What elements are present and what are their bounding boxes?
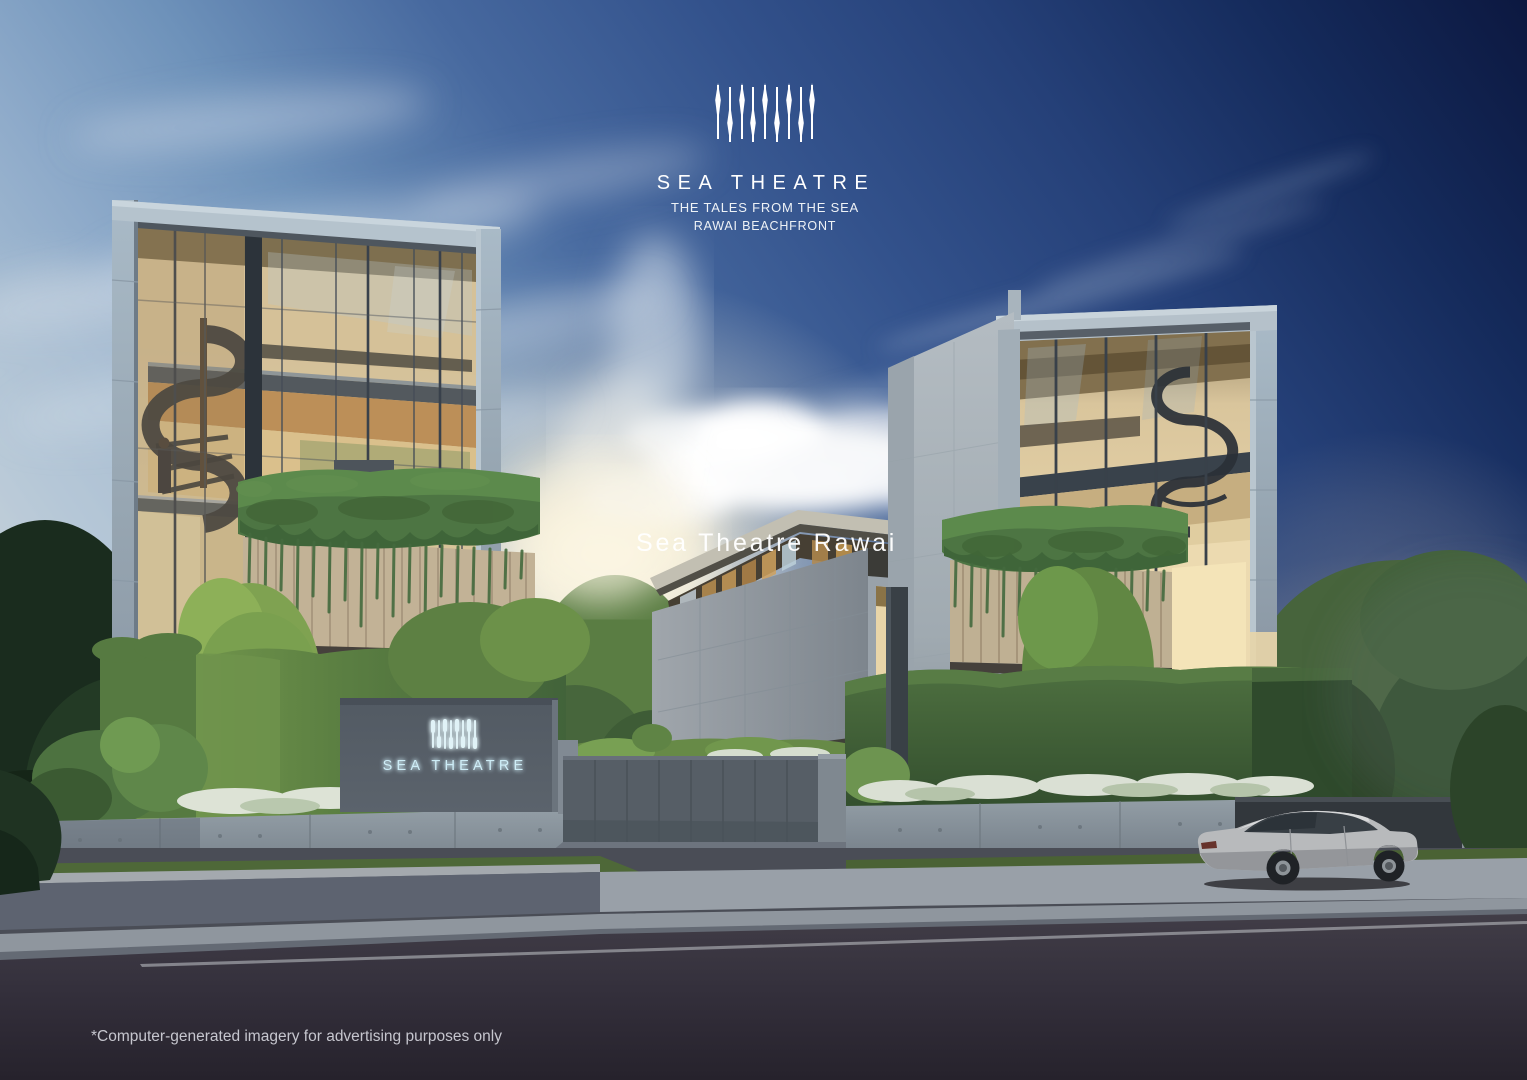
- svg-text:THE TALES FROM THE SEA: THE TALES FROM THE SEA: [671, 200, 859, 215]
- svg-text:SEA THEATRE: SEA THEATRE: [383, 758, 528, 774]
- svg-text:SEA THEATRE: SEA THEATRE: [657, 172, 875, 194]
- svg-text:Sea Theatre Rawai: Sea Theatre Rawai: [636, 529, 897, 557]
- svg-text:*Computer-generated imagery fo: *Computer-generated imagery for advertis…: [91, 1028, 502, 1045]
- svg-text:RAWAI BEACHFRONT: RAWAI BEACHFRONT: [694, 219, 836, 233]
